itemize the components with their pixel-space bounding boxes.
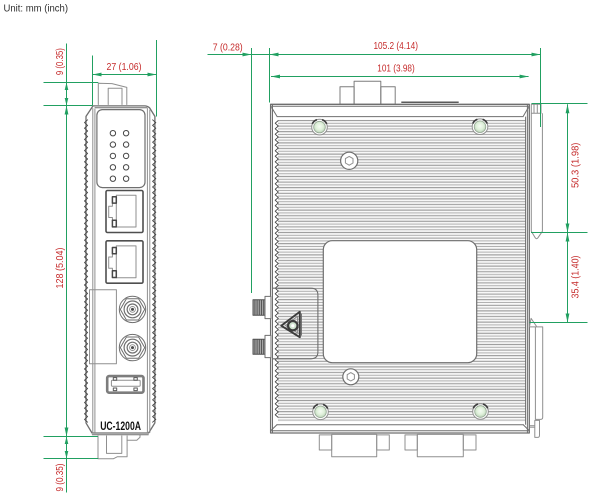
svg-text:50.3 (1.98): 50.3 (1.98): [569, 143, 581, 189]
svg-text:UC-1200A: UC-1200A: [100, 420, 141, 433]
svg-text:27 (1.06): 27 (1.06): [107, 61, 142, 73]
svg-text:128 (5.04): 128 (5.04): [54, 248, 66, 289]
svg-text:9 (0.35): 9 (0.35): [54, 48, 66, 75]
svg-text:101 (3.98): 101 (3.98): [377, 62, 415, 74]
svg-text:9 (0.35): 9 (0.35): [54, 464, 66, 492]
svg-text:35.4 (1.40): 35.4 (1.40): [569, 256, 581, 299]
svg-text:Unit: mm (inch): Unit: mm (inch): [4, 3, 69, 14]
svg-text:105.2 (4.14): 105.2 (4.14): [373, 40, 418, 52]
svg-text:7 (0.28): 7 (0.28): [213, 42, 243, 54]
